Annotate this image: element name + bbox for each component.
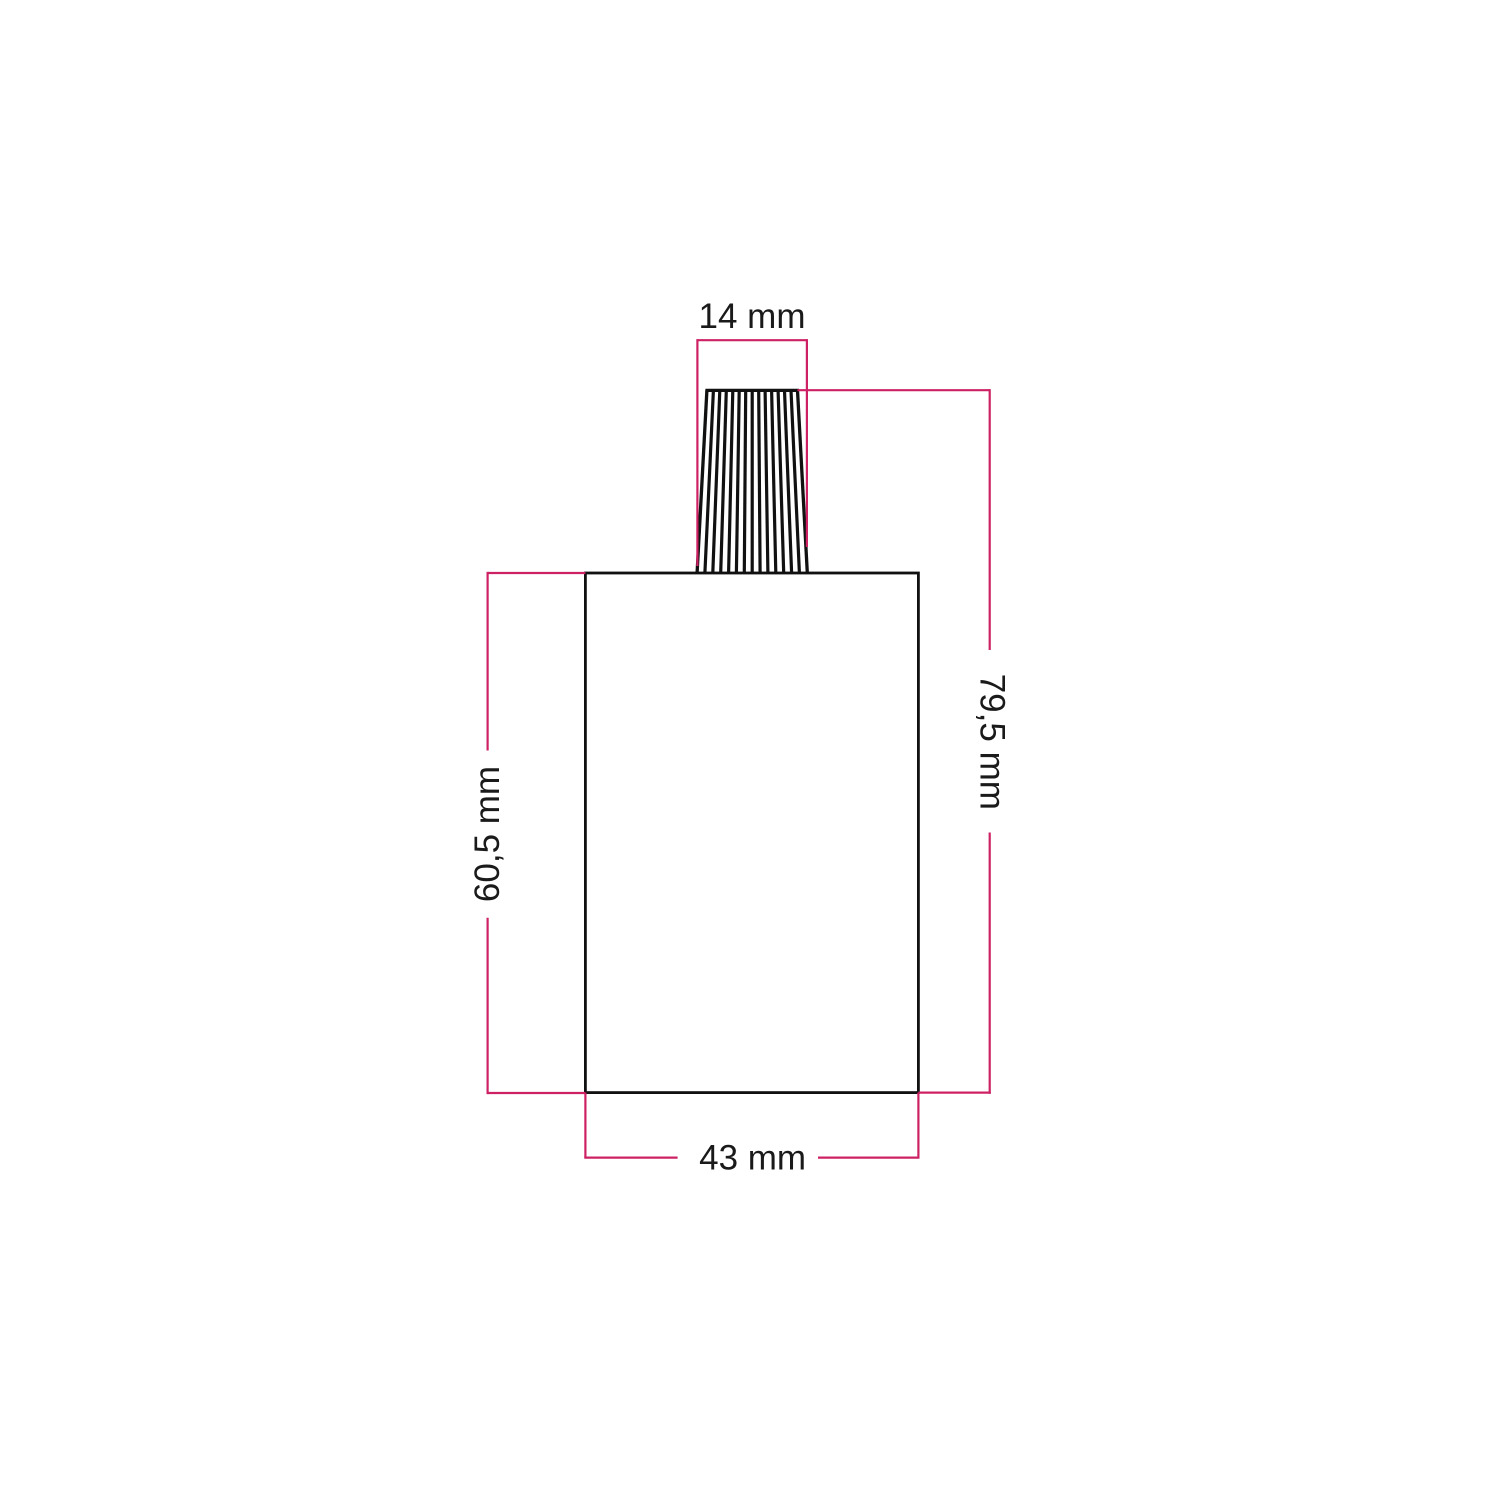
svg-text:14 mm: 14 mm (699, 297, 806, 336)
svg-text:79,5 mm: 79,5 mm (972, 674, 1011, 810)
svg-text:43 mm: 43 mm (699, 1139, 806, 1178)
svg-text:60,5 mm: 60,5 mm (468, 766, 507, 902)
